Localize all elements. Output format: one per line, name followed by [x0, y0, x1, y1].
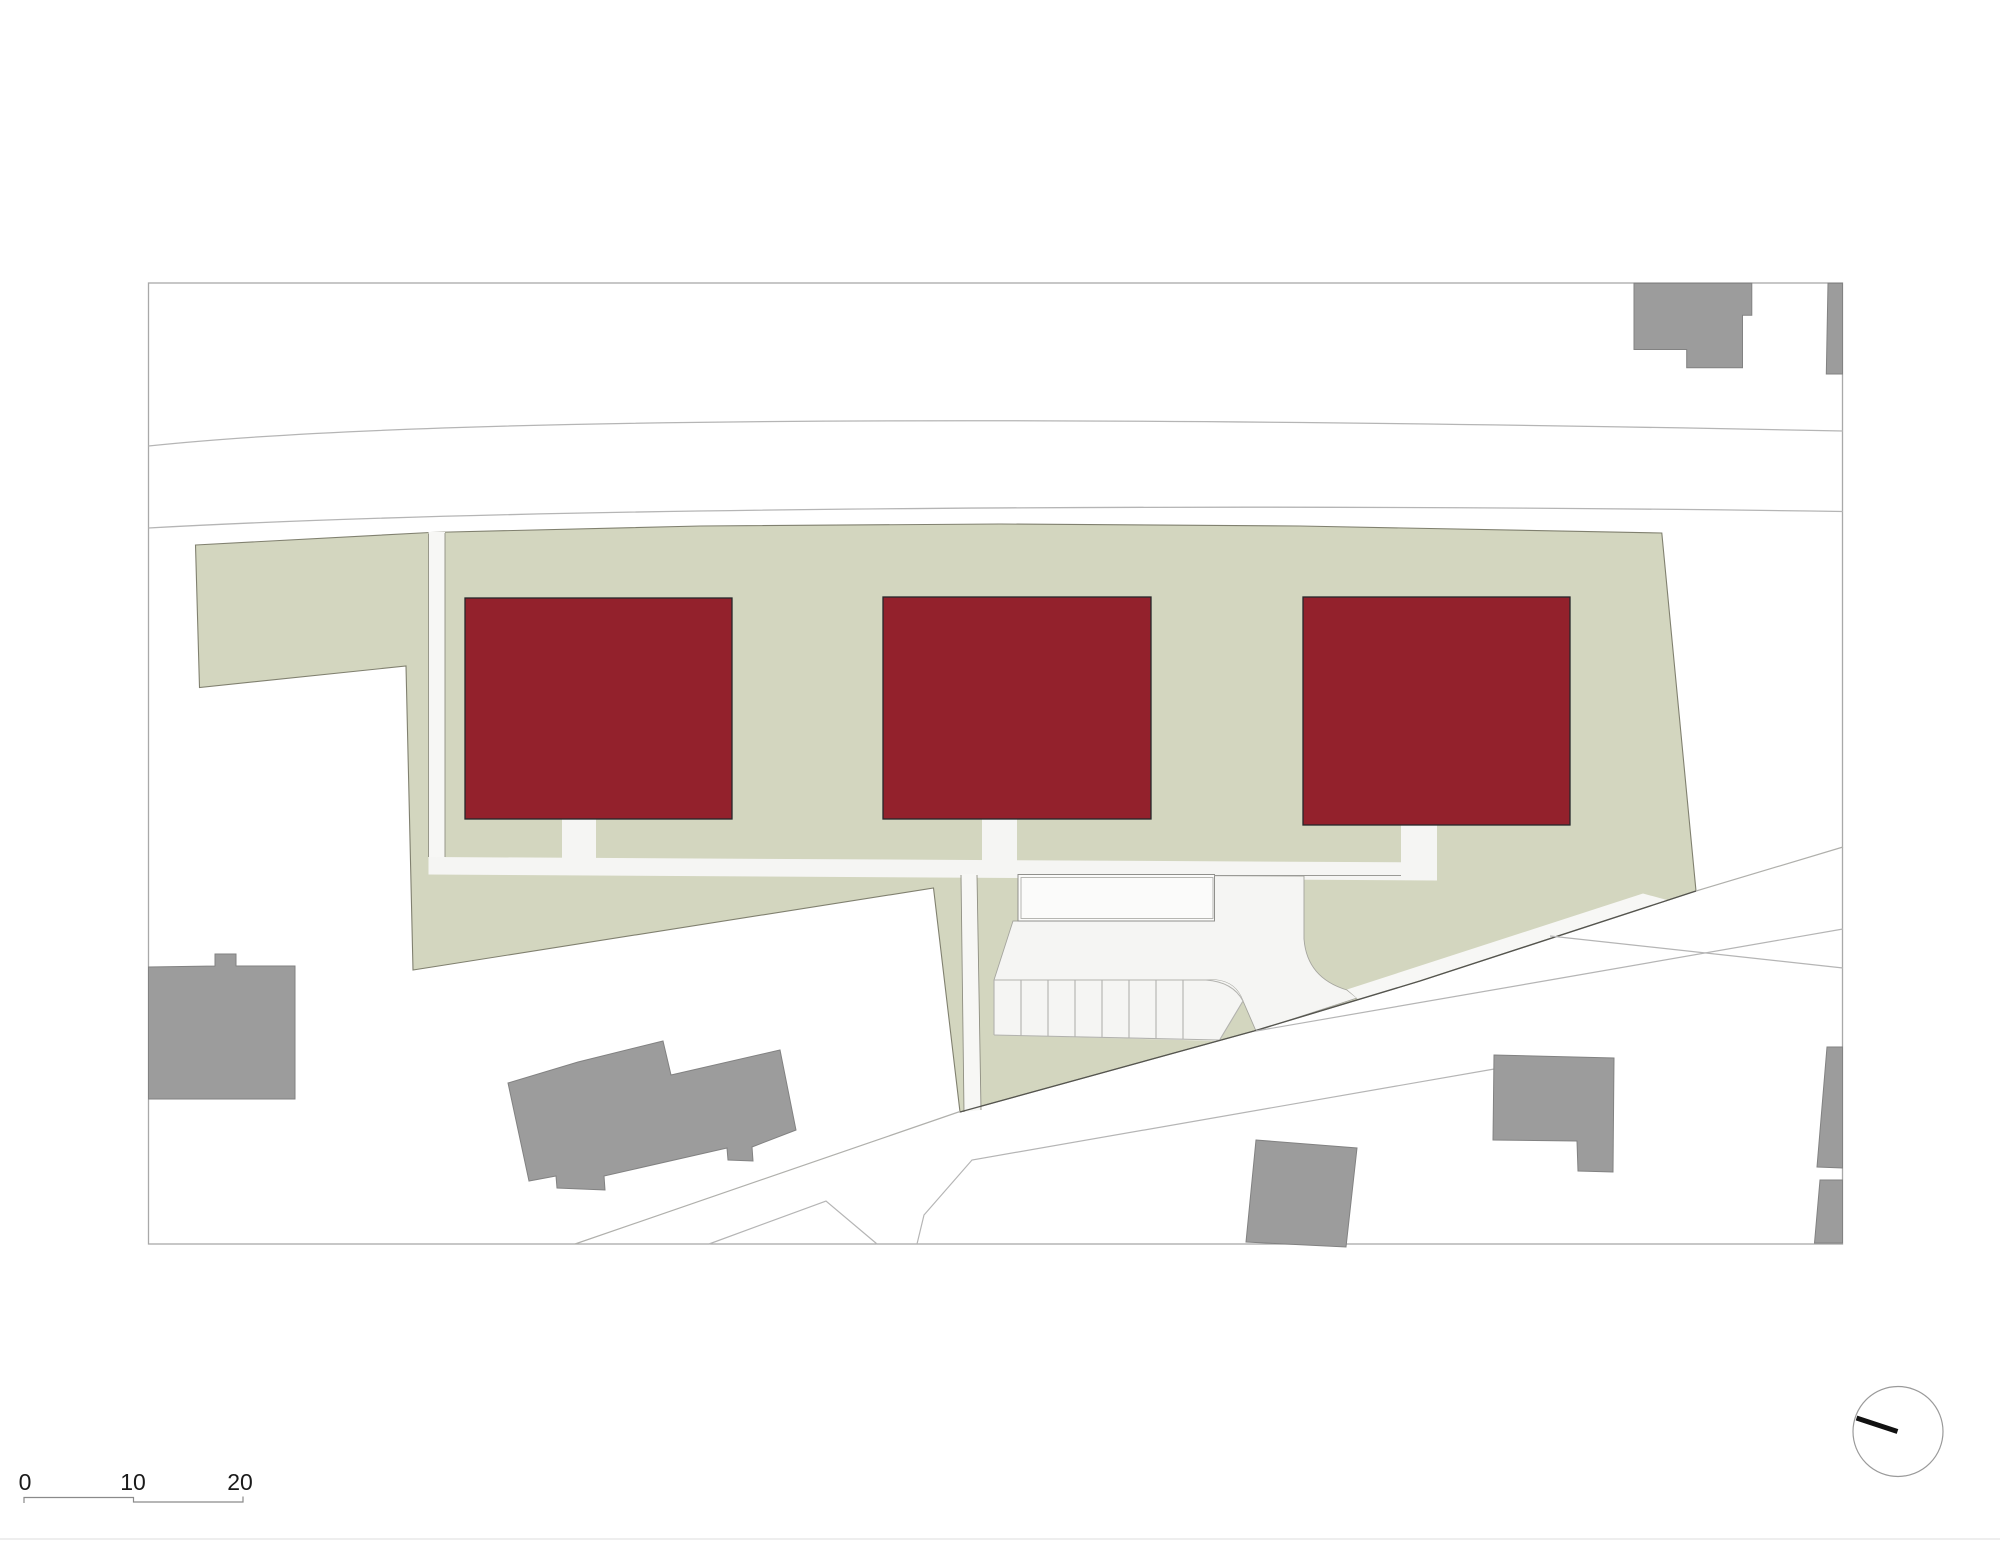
svg-text:20: 20 [227, 1469, 253, 1495]
svg-text:0: 0 [19, 1469, 32, 1495]
svg-text:10: 10 [120, 1469, 146, 1495]
